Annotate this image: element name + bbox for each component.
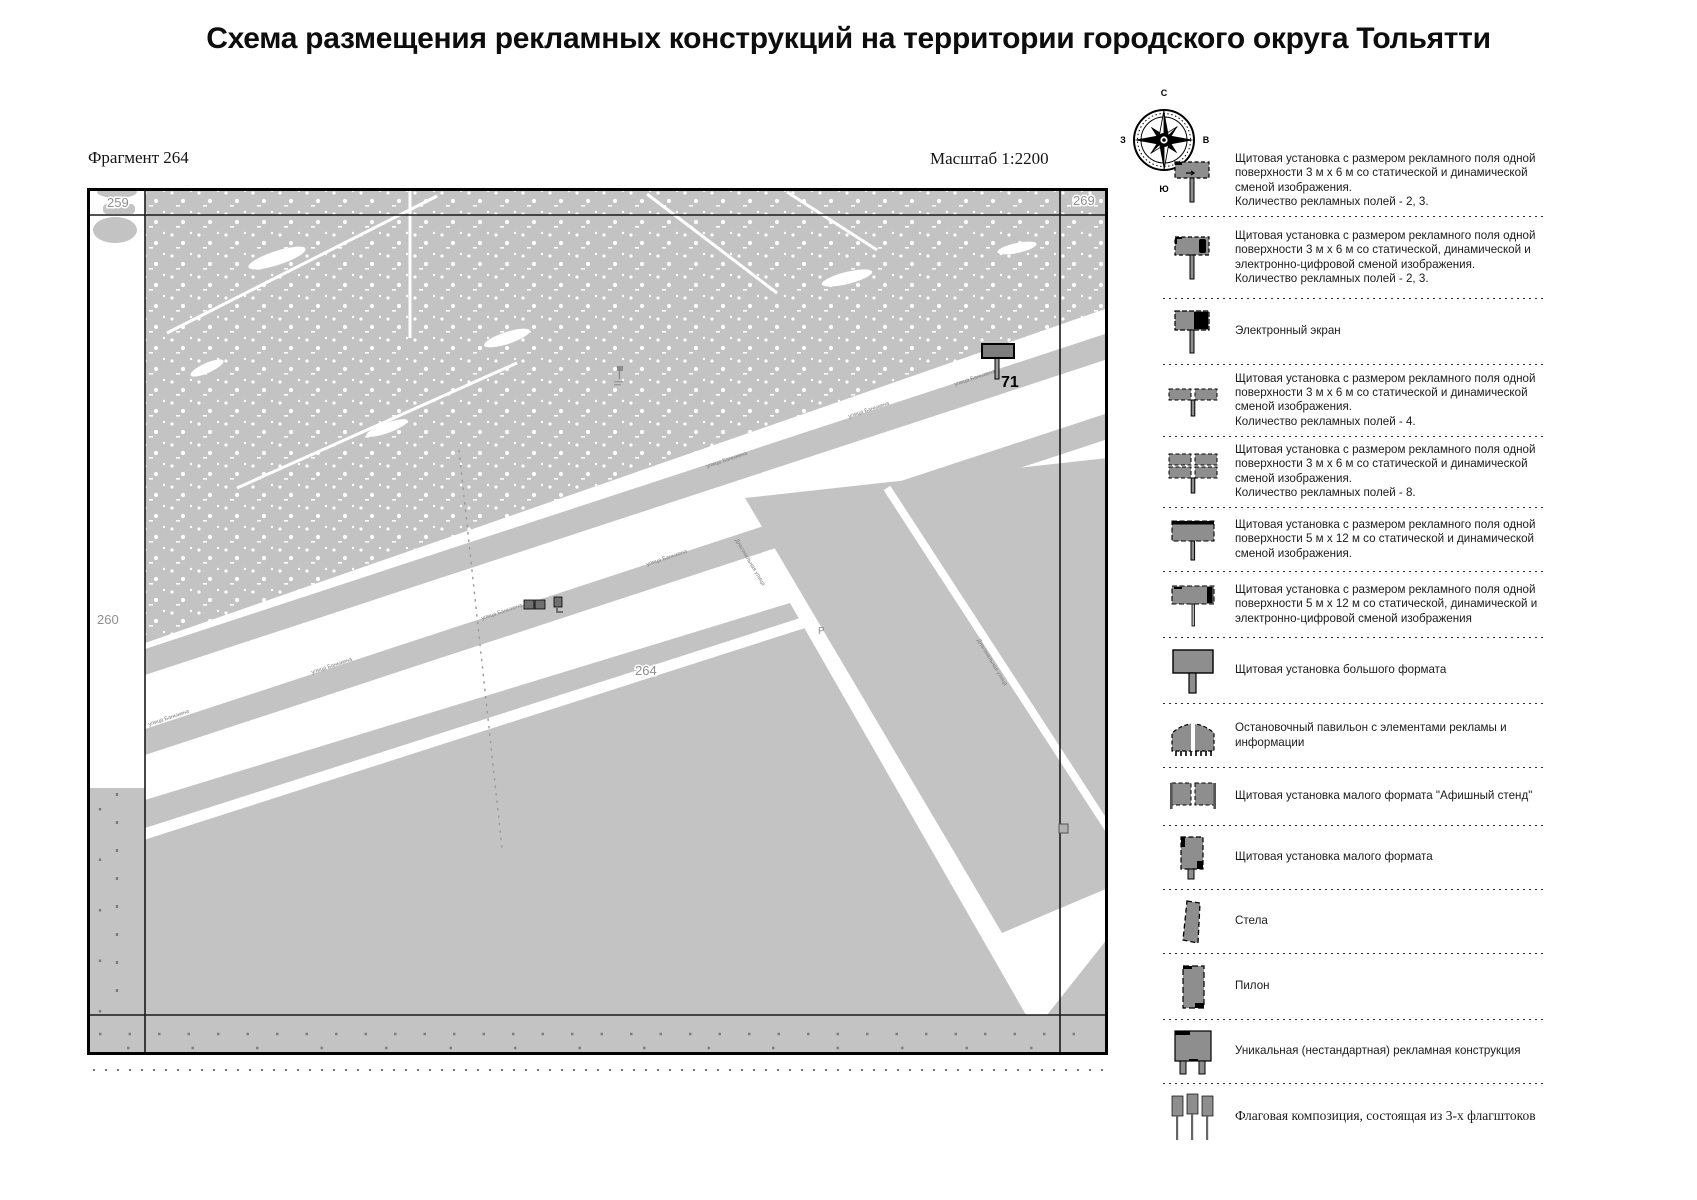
fragment-label-260: 260 xyxy=(97,612,119,627)
corner-wedge xyxy=(1047,938,1108,1015)
poster-stand-icon xyxy=(1163,775,1223,819)
legend-item: Остановочный павильон с элементами рекла… xyxy=(1163,705,1543,767)
legend-item: Щитовая установка с размером рекламного … xyxy=(1163,146,1543,216)
legend-item: Щитовая установка с размером рекламного … xyxy=(1163,366,1543,436)
legend-item: Стела xyxy=(1163,891,1543,953)
compass-north-label: С xyxy=(1161,88,1168,98)
scheme-page: Схема размещения рекламных конструкций н… xyxy=(0,0,1697,1200)
legend-item-text: Щитовая установка с размером рекламного … xyxy=(1235,443,1543,501)
legend-item-text: Электронный экран xyxy=(1235,324,1543,338)
billboard-3x6-4fields-icon xyxy=(1163,377,1223,423)
map-canvas: улица Баныкина улица Баныкина улица Баны… xyxy=(87,188,1108,1080)
legend-item-text: Щитовая установка с размером рекламного … xyxy=(1235,372,1543,430)
legend-item: Щитовая установка с размером рекламного … xyxy=(1163,218,1543,298)
fragment-label-259: 259 xyxy=(107,195,129,210)
billboard-3x6-digital-icon xyxy=(1163,232,1223,284)
fragment-label-264: 264 xyxy=(635,663,657,678)
scale-label: Масштаб 1:2200 xyxy=(930,149,1049,169)
compass-west-label: З xyxy=(1120,135,1126,145)
legend-item: Щитовая установка с размером рекламного … xyxy=(1163,509,1543,571)
pylon-icon xyxy=(1163,961,1223,1013)
unique-construction-icon xyxy=(1163,1027,1223,1077)
billboard-5x12-static-icon xyxy=(1163,515,1223,565)
billboard-3x6-static-icon xyxy=(1163,155,1223,207)
legend-item-text: Уникальная (нестандартная) рекламная кон… xyxy=(1235,1044,1543,1058)
small-format-billboard-icon xyxy=(1163,833,1223,883)
marker-number: 71 xyxy=(1001,374,1019,391)
legend-item-text: Щитовая установка малого формата "Афишны… xyxy=(1235,789,1543,803)
legend-item-text: Щитовая установка с размером рекламного … xyxy=(1235,583,1543,626)
fragment-label: Фрагмент 264 xyxy=(88,148,189,168)
stela-icon xyxy=(1163,897,1223,947)
legend-item: Пилон xyxy=(1163,955,1543,1019)
legend-item: Флаговая композиция, состоящая из 3-х фл… xyxy=(1163,1085,1543,1149)
page-title: Схема размещения рекламных конструкций н… xyxy=(0,22,1697,56)
legend-item-text: Стела xyxy=(1235,914,1543,928)
electronic-screen-icon xyxy=(1163,306,1223,358)
legend-item: Щитовая установка малого формата xyxy=(1163,827,1543,889)
legend-item: Электронный экран xyxy=(1163,300,1543,364)
legend-item: Щитовая установка с размером рекламного … xyxy=(1163,437,1543,507)
legend-item-text: Щитовая установка с размером рекламного … xyxy=(1235,229,1543,287)
large-format-billboard-icon xyxy=(1163,645,1223,697)
parking-symbol: Р xyxy=(818,626,825,637)
billboard-5x12-digital-icon xyxy=(1163,580,1223,630)
legend-item-text: Щитовая установка большого формата xyxy=(1235,663,1543,677)
legend-item-text: Остановочный павильон с элементами рекла… xyxy=(1235,721,1543,750)
legend-item: Щитовая установка большого формата xyxy=(1163,639,1543,703)
legend-item: Уникальная (нестандартная) рекламная кон… xyxy=(1163,1021,1543,1083)
utility-symbol xyxy=(1059,824,1068,833)
billboard-3x6-8fields-icon xyxy=(1163,448,1223,496)
legend-item-text: Флаговая композиция, состоящая из 3-х фл… xyxy=(1235,1106,1543,1126)
compass-east-label: В xyxy=(1203,135,1210,145)
legend-item: Щитовая установка с размером рекламного … xyxy=(1163,573,1543,637)
legend-item-text: Щитовая установка с размером рекламного … xyxy=(1235,152,1543,210)
legend-item-text: Пилон xyxy=(1235,979,1543,993)
legend-item-text: Щитовая установка с размером рекламного … xyxy=(1235,518,1543,561)
bus-stop-pavilion-icon xyxy=(1163,711,1223,761)
legend: Щитовая установка с размером рекламного … xyxy=(1163,146,1543,1149)
flag-composition-icon xyxy=(1163,1091,1223,1143)
legend-item: Щитовая установка малого формата "Афишны… xyxy=(1163,769,1543,825)
fragment-label-269: 269 xyxy=(1073,193,1095,208)
legend-item-text: Щитовая установка малого формата xyxy=(1235,850,1543,864)
